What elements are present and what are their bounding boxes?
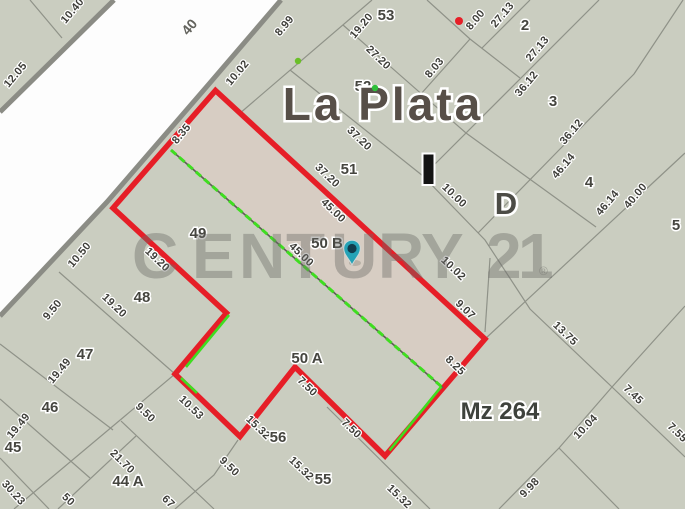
svg-text:4: 4 bbox=[585, 174, 594, 191]
svg-text:CENTURY21: CENTURY21 bbox=[132, 220, 554, 292]
svg-text:51: 51 bbox=[341, 161, 358, 178]
svg-text:2: 2 bbox=[521, 17, 529, 34]
svg-text:55: 55 bbox=[315, 471, 332, 488]
svg-text:46: 46 bbox=[42, 399, 59, 416]
svg-text:45: 45 bbox=[5, 439, 22, 456]
svg-text:La Plata: La Plata bbox=[283, 78, 483, 130]
svg-text:44 A: 44 A bbox=[112, 473, 143, 490]
svg-text:47: 47 bbox=[77, 346, 94, 363]
svg-text:3: 3 bbox=[549, 93, 557, 110]
svg-text:5: 5 bbox=[672, 217, 680, 234]
svg-text:®: ® bbox=[539, 264, 548, 278]
svg-text:53: 53 bbox=[378, 7, 395, 24]
svg-text:Mz 264: Mz 264 bbox=[461, 398, 540, 425]
svg-text:50 A: 50 A bbox=[291, 350, 322, 367]
svg-text:56: 56 bbox=[270, 429, 287, 446]
svg-text:D: D bbox=[495, 186, 517, 221]
